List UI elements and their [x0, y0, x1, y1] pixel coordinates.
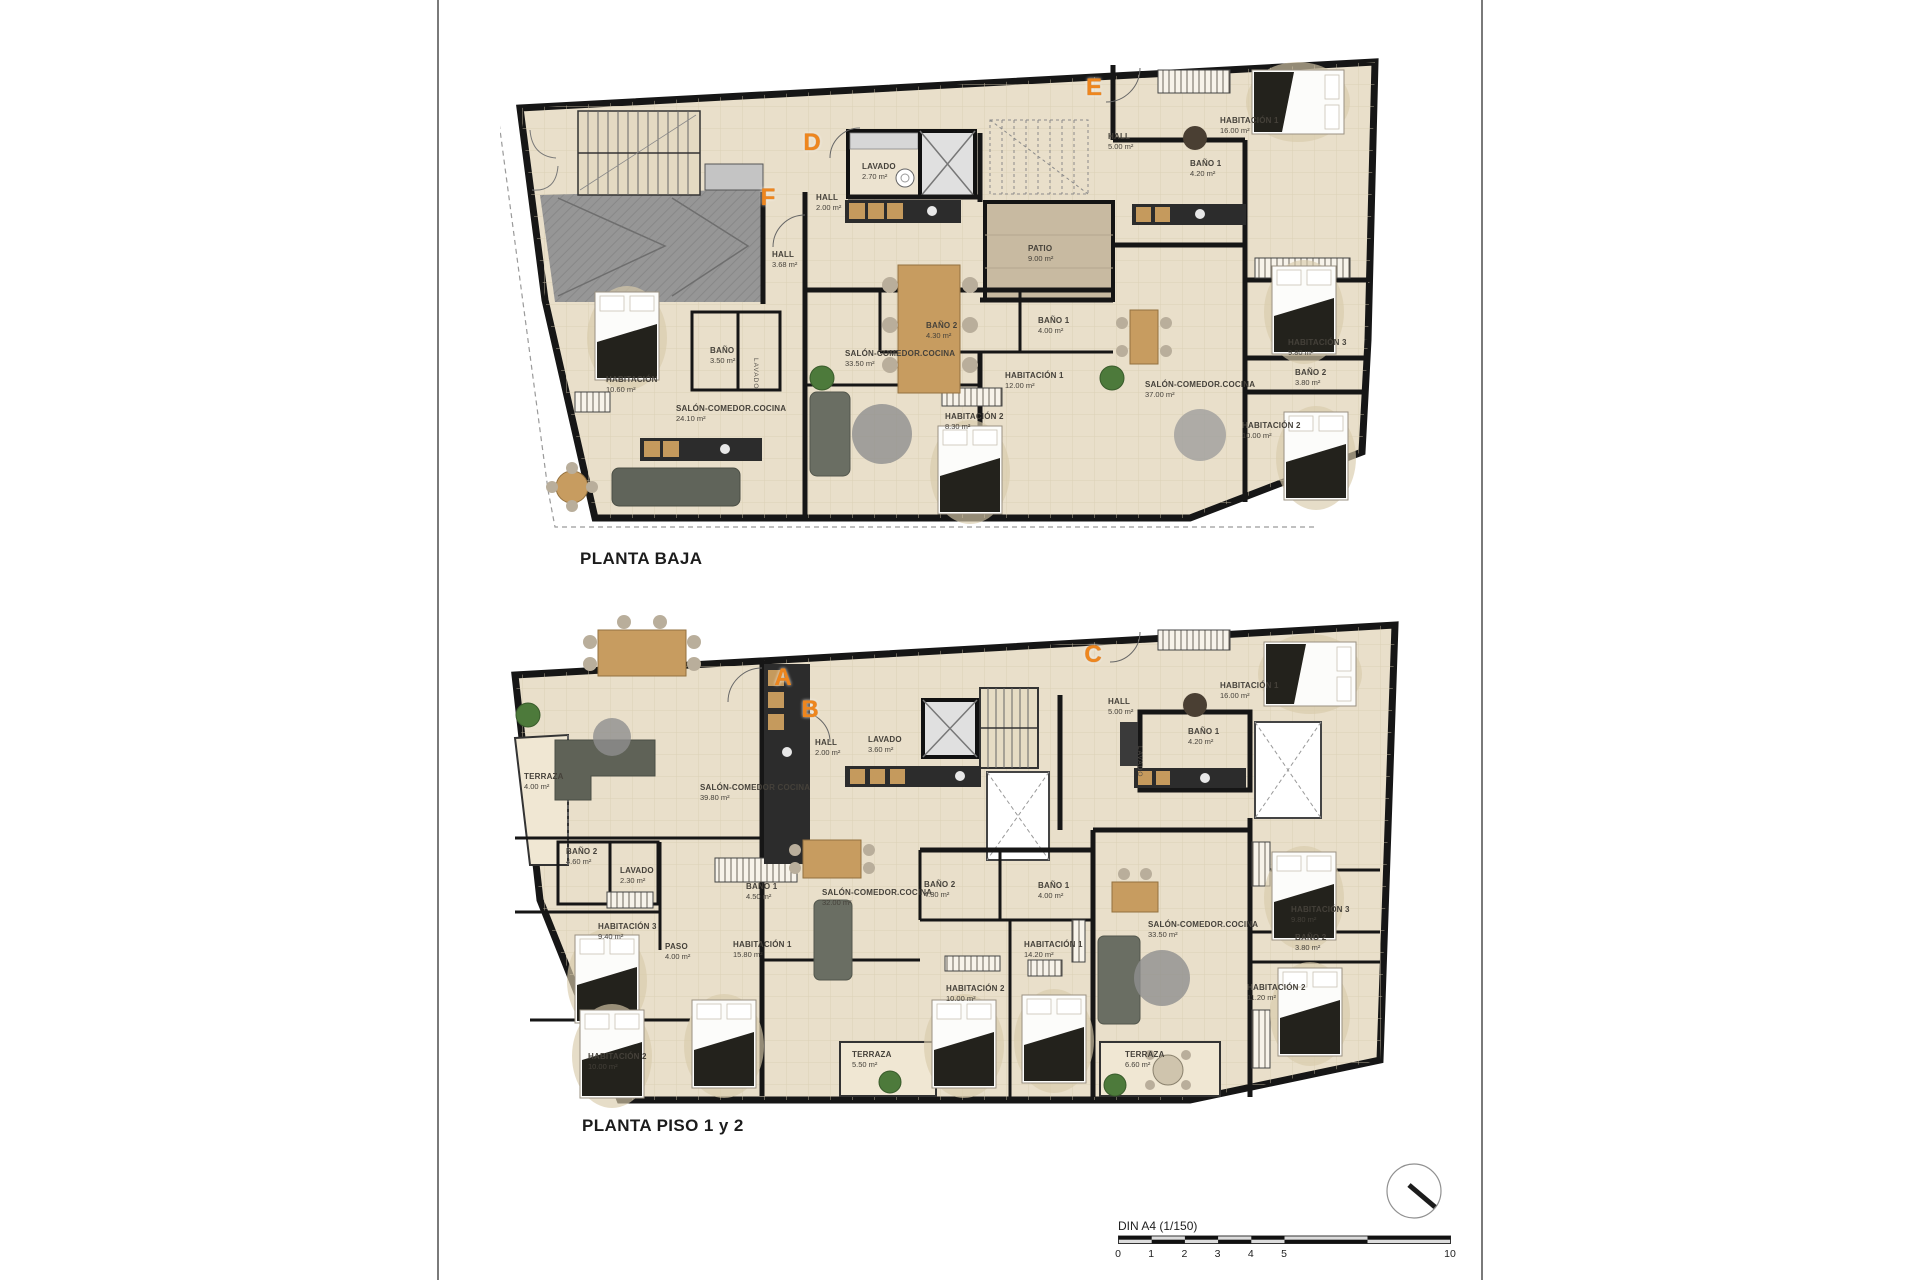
sheet: FDEHALL3.68 m²BAÑO3.50 m²HABITACIÓN10.60…: [0, 0, 1920, 1280]
room-label: BAÑO 24.30 m²: [924, 880, 955, 899]
room-label: BAÑO 23.80 m²: [1295, 368, 1326, 387]
scale-tick: 1: [1148, 1248, 1154, 1260]
room-label: TERRAZA5.50 m²: [852, 1050, 892, 1069]
room-label: HABITACIÓN 28.30 m²: [945, 412, 1004, 431]
room-label: TERRAZA6.60 m²: [1125, 1050, 1165, 1069]
room-label: HALL5.00 m²: [1108, 697, 1133, 716]
scale-label: DIN A4 (1/150): [1118, 1219, 1458, 1233]
apartment-letter-A: A: [774, 664, 791, 692]
room-label: BAÑO 23.80 m²: [1295, 933, 1326, 952]
room-label: BAÑO 14.00 m²: [1038, 881, 1069, 900]
room-label: HABITACIÓN 39.80 m²: [1291, 905, 1350, 924]
room-label: HALL2.00 m²: [815, 738, 840, 757]
room-label: HABITACIÓN 116.00 m²: [1220, 116, 1279, 135]
room-label: HALL5.00 m²: [1108, 132, 1133, 151]
room-label: BAÑO 14.50 m²: [746, 882, 777, 901]
room-label: BAÑO 14.00 m²: [1038, 316, 1069, 335]
apartment-letter-C: C: [1084, 641, 1101, 669]
room-label: LAVADO3.60 m²: [868, 735, 902, 754]
room-label: LAVADO2.70 m²: [862, 162, 896, 181]
north-indicator: [1383, 1160, 1445, 1222]
room-label: HABITACIÓN 39.80 m²: [1288, 338, 1347, 357]
vertical-label: LAVADO: [1136, 746, 1143, 777]
scale-ticks: 01234510: [1118, 1246, 1458, 1260]
room-label: SALÓN-COMEDOR.COCINA37.00 m²: [1145, 380, 1255, 399]
scale-tick: 3: [1215, 1248, 1221, 1260]
room-label: HALL3.68 m²: [772, 250, 797, 269]
room-label: SALÓN-COMEDOR COCINA39.80 m²: [700, 783, 810, 802]
scale-bar: DIN A4 (1/150) 01234510: [1118, 1219, 1458, 1267]
apartment-letter-D: D: [803, 129, 820, 157]
room-label: HABITACIÓN 210.00 m²: [1242, 421, 1301, 440]
page-border-right: [1481, 0, 1483, 1280]
apartment-letter-F: F: [761, 184, 776, 212]
room-label: BAÑO 14.20 m²: [1190, 159, 1221, 178]
room-label: HABITACIÓN 116.00 m²: [1220, 681, 1279, 700]
room-label: TERRAZA4.00 m²: [524, 772, 564, 791]
room-label: BAÑO 24.30 m²: [926, 321, 957, 340]
room-labels-layer-baja: FDEHALL3.68 m²BAÑO3.50 m²HABITACIÓN10.60…: [500, 40, 1400, 540]
apartment-letter-B: B: [801, 696, 818, 724]
scale-tick: 4: [1248, 1248, 1254, 1260]
room-label: BAÑO 14.20 m²: [1188, 727, 1219, 746]
room-label: HABITACIÓN 114.20 m²: [1024, 940, 1083, 959]
north-arrow-icon: [1383, 1160, 1445, 1222]
room-label: HABITACIÓN10.60 m²: [606, 375, 658, 394]
room-label: HABITACIÓN 115.80 m²: [733, 940, 792, 959]
room-label: PATIO9.00 m²: [1028, 244, 1053, 263]
apartment-letter-E: E: [1086, 74, 1102, 102]
scale-tick: 0: [1115, 1248, 1121, 1260]
plan-title-piso: PLANTA PISO 1 y 2: [582, 1116, 744, 1136]
room-label: SALÓN-COMEDOR.COCINA33.50 m²: [845, 349, 955, 368]
room-label: BAÑO3.50 m²: [710, 346, 735, 365]
room-label: SALÓN-COMEDOR.COCINA33.50 m²: [1148, 920, 1258, 939]
scale-bar-graphic: [1118, 1235, 1458, 1246]
room-label: BAÑO 24.60 m²: [566, 847, 597, 866]
floorplan-planta-baja: FDEHALL3.68 m²BAÑO3.50 m²HABITACIÓN10.60…: [500, 40, 1400, 540]
page-border-left: [437, 0, 439, 1280]
scale-tick: 10: [1444, 1248, 1456, 1260]
floorplan-planta-piso: ABCTERRAZA4.00 m²SALÓN-COMEDOR COCINA39.…: [500, 600, 1400, 1120]
scale-tick: 5: [1281, 1248, 1287, 1260]
room-label: HALL2.00 m²: [816, 193, 841, 212]
vertical-label: LAVADO: [752, 358, 759, 389]
scale-tick: 2: [1181, 1248, 1187, 1260]
room-label: HABITACIÓN 210.00 m²: [946, 984, 1005, 1003]
room-label: HABITACIÓN 112.00 m²: [1005, 371, 1064, 390]
room-label: HABITACIÓN 210.00 m²: [588, 1052, 647, 1071]
room-label: PASO4.00 m²: [665, 942, 690, 961]
room-label: HABITACIÓN 39.40 m²: [598, 922, 657, 941]
room-label: SALÓN-COMEDOR.COCINA24.10 m²: [676, 404, 786, 423]
plan-title-baja: PLANTA BAJA: [580, 549, 702, 569]
room-label: HABITACIÓN 211.20 m²: [1247, 983, 1306, 1002]
room-label: LAVADO2.30 m²: [620, 866, 654, 885]
room-labels-layer-piso: ABCTERRAZA4.00 m²SALÓN-COMEDOR COCINA39.…: [500, 600, 1400, 1120]
room-label: SALÓN-COMEDOR.COCINA32.00 m²: [822, 888, 932, 907]
